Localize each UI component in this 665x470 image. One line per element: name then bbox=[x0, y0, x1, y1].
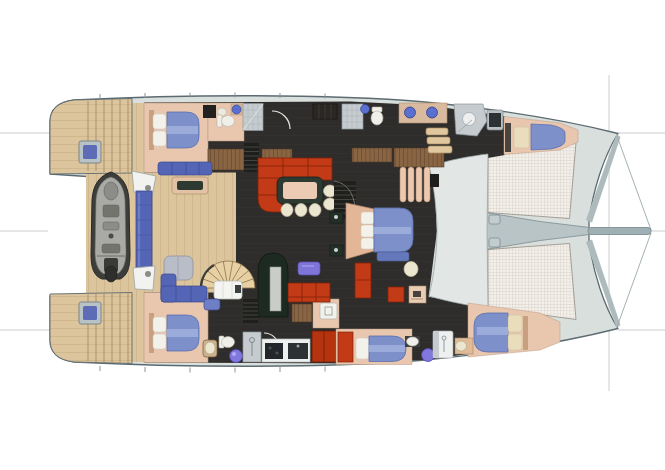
salon-sofa-red-2 bbox=[288, 283, 330, 302]
faucet bbox=[297, 345, 300, 348]
port-transom-window bbox=[79, 141, 101, 163]
nightstand-lamp-2 bbox=[334, 248, 338, 252]
washbasin-blue bbox=[232, 105, 241, 114]
starboard-companionway-stairs bbox=[243, 299, 258, 323]
deck-bench-blue bbox=[158, 162, 212, 175]
master-pouf bbox=[404, 262, 418, 277]
nightstand-lamp-1 bbox=[334, 215, 338, 219]
master-bed-runner bbox=[374, 227, 411, 234]
salon-cabinet-ribbed bbox=[352, 148, 392, 162]
washing-machine bbox=[487, 110, 503, 130]
shower-tray-grid bbox=[342, 104, 363, 129]
master-red-bench bbox=[355, 263, 371, 298]
dinette-table bbox=[277, 177, 323, 204]
fwd-bed-runner bbox=[477, 327, 508, 335]
tender-fitting bbox=[109, 234, 114, 239]
fwd-bed-pillow-1 bbox=[508, 315, 522, 332]
twin-sink-2 bbox=[427, 107, 438, 118]
master-desk bbox=[409, 286, 426, 303]
fwd-bed-headboard bbox=[523, 316, 528, 350]
toilet-bowl bbox=[222, 116, 235, 127]
yacht-deck-plan bbox=[0, 0, 665, 470]
hull-entry-steps bbox=[426, 128, 452, 153]
starboard-mid-cabin bbox=[336, 329, 412, 365]
deck-table bbox=[172, 177, 208, 194]
wall-tv bbox=[430, 174, 439, 187]
bowsprit-pole bbox=[588, 228, 651, 235]
crew-bed-pillow bbox=[514, 127, 529, 148]
outboard-cowl bbox=[105, 266, 117, 282]
tender-bow-locker bbox=[104, 182, 118, 200]
crew-bed-head bbox=[505, 123, 511, 152]
spine-hatch-1 bbox=[489, 215, 500, 224]
wardrobe-dark bbox=[313, 104, 337, 119]
crane-arm-bottom bbox=[133, 266, 155, 290]
master-pillow-1 bbox=[361, 212, 374, 224]
twin-sink-1 bbox=[405, 107, 416, 118]
starboard-aft-cabin bbox=[144, 293, 208, 363]
tender-aft-seat bbox=[102, 244, 120, 253]
stbd-aft-bed-pillow-2 bbox=[153, 334, 166, 349]
rug-purple bbox=[298, 262, 320, 275]
master-foot-bench bbox=[377, 252, 409, 261]
tender-seat bbox=[103, 222, 119, 230]
washbasin-blue-2 bbox=[361, 105, 370, 114]
master-pillow-3 bbox=[361, 238, 374, 249]
wardrobe-ribbed-e bbox=[292, 304, 312, 322]
stbd-aft-bed-pillow-1 bbox=[153, 317, 166, 332]
crane-pivot-bottom bbox=[145, 271, 151, 277]
washbasin-purple bbox=[230, 350, 243, 363]
day-head-arch bbox=[258, 253, 288, 317]
mid-bed-runner bbox=[369, 345, 405, 352]
mid-bed-pillow bbox=[356, 338, 369, 359]
shower-cabinet bbox=[433, 331, 453, 358]
port-aft-bed-runner bbox=[167, 126, 198, 134]
toilet-bowl-2 bbox=[371, 111, 383, 125]
stool-3 bbox=[309, 204, 321, 217]
crane-pivot-top bbox=[145, 185, 151, 191]
port-aft-bed-pillow-2 bbox=[153, 131, 166, 146]
deck-hatch bbox=[214, 281, 242, 299]
washbasin-white bbox=[407, 337, 419, 346]
burner-2 bbox=[275, 351, 278, 354]
washbasin-purple-2 bbox=[422, 349, 435, 362]
fwd-bed-pillow-2 bbox=[508, 334, 522, 350]
washbasin-purple-hl bbox=[232, 352, 236, 356]
master-red-chest bbox=[388, 287, 404, 302]
port-companionway-stairs bbox=[244, 143, 259, 172]
cooktop bbox=[265, 343, 283, 359]
spine-hatch-2 bbox=[489, 238, 500, 247]
master-pillow-2 bbox=[361, 225, 374, 237]
rattan-chair-seat bbox=[205, 342, 215, 354]
burner-1 bbox=[268, 346, 271, 349]
crew-bed-mattress bbox=[531, 124, 565, 150]
ice-maker bbox=[320, 303, 337, 319]
stool-2 bbox=[295, 204, 307, 217]
tender-console bbox=[103, 205, 119, 217]
tender-rib bbox=[91, 172, 130, 282]
stool-1 bbox=[281, 204, 293, 217]
davit-crane bbox=[132, 171, 156, 290]
vanity-desk bbox=[203, 105, 216, 118]
fwd-desk-chair bbox=[456, 341, 467, 351]
toilet-bowl-3 bbox=[222, 337, 235, 348]
port-aft-bed-pillow-1 bbox=[153, 114, 166, 129]
wardrobe-ribbed-a bbox=[208, 149, 244, 170]
stbd-aft-bed-runner bbox=[167, 329, 198, 337]
mid-cabin-wardrobe-red bbox=[338, 332, 353, 362]
starboard-transom-window bbox=[79, 302, 101, 324]
shower-stall bbox=[243, 104, 263, 131]
shower-panel bbox=[243, 332, 261, 362]
